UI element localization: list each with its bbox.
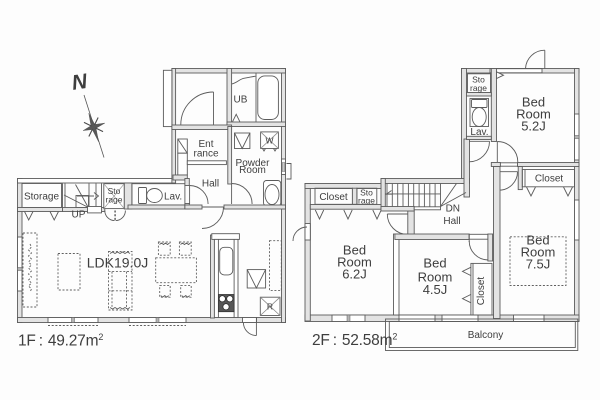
svg-text:Storage: Storage (24, 192, 59, 203)
svg-text:Closet: Closet (535, 174, 564, 185)
svg-text:rage: rage (358, 196, 375, 206)
svg-text:Bed: Bed (423, 256, 446, 271)
svg-text:rage: rage (105, 195, 122, 205)
svg-text:LDK19.0J: LDK19.0J (87, 255, 148, 271)
svg-text:DN: DN (446, 204, 460, 215)
svg-text:7.5J: 7.5J (526, 257, 551, 272)
svg-text:Closet: Closet (319, 192, 348, 203)
svg-text:Room: Room (239, 165, 266, 176)
svg-text:R: R (267, 302, 273, 312)
svg-text:rage: rage (470, 83, 487, 93)
svg-text:5.2J: 5.2J (521, 119, 546, 134)
svg-text:6.2J: 6.2J (342, 267, 367, 282)
svg-text:Balcony: Balcony (468, 330, 504, 341)
svg-text:W: W (265, 136, 273, 146)
svg-text:1F:49.27m2: 1F:49.27m2 (18, 332, 103, 350)
svg-text:Hall: Hall (202, 179, 219, 190)
svg-text:rance: rance (193, 149, 218, 160)
svg-text:UB: UB (234, 95, 248, 106)
svg-text:UP: UP (72, 210, 86, 221)
svg-text:2F:52.58m2: 2F:52.58m2 (312, 332, 397, 350)
svg-text:Closet: Closet (476, 277, 487, 306)
svg-text:Hall: Hall (443, 216, 460, 227)
svg-text:4.5J: 4.5J (423, 282, 448, 297)
svg-text:Lav.: Lav. (164, 192, 182, 203)
